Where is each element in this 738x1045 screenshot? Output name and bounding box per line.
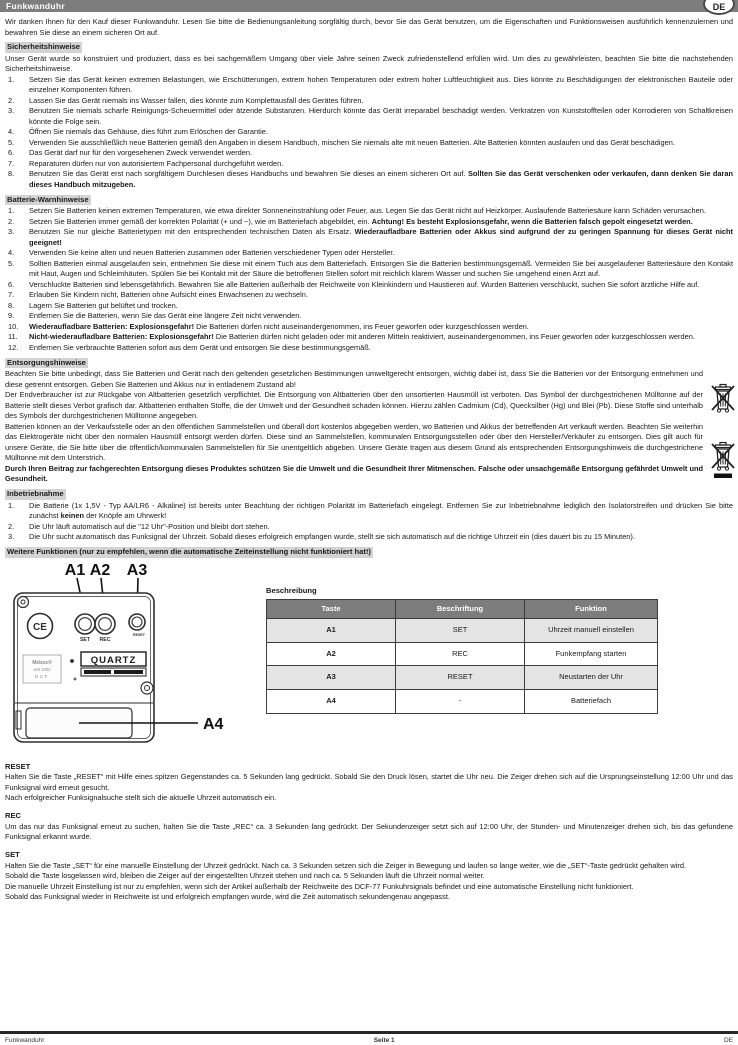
- crossed-bin-weee-icon: [711, 441, 735, 479]
- list-item-text: Setzen Sie Batterien keinen extremen Tem…: [29, 206, 733, 217]
- safety-list-item: 5. Verwenden Sie ausschließlich neue Bat…: [5, 138, 733, 149]
- list-item-number: 12.: [5, 343, 29, 354]
- column-header-beschriftung: Beschriftung: [396, 600, 525, 619]
- button-description-table: Taste Beschriftung Funktion A1 SET Uhrze…: [266, 599, 658, 713]
- list-item-text: Benutzen Sie das Gerät erst nach sorgfäl…: [29, 169, 733, 190]
- list-item-text: Das Gerät darf nur für den vorgesehenen …: [29, 148, 733, 159]
- safety-list-item: 1. Setzen Sie das Gerät keinen extremen …: [5, 75, 733, 96]
- list-item-number: 9.: [5, 311, 29, 322]
- setup-list-item: 3. Die Uhr sucht automatisch das Funksig…: [5, 532, 733, 543]
- safety-list-item: 4. Öffnen Sie niemals das Gehäuse, dies …: [5, 127, 733, 138]
- list-item-text: Verschluckte Batterien sind lebensgefähr…: [29, 280, 733, 291]
- diagram-and-table: A1 A2 A3 CE SET REC RESE: [6, 560, 733, 755]
- list-item-number: 3.: [5, 106, 29, 127]
- list-item-number: 2.: [5, 522, 29, 533]
- rec-button-label: REC: [100, 637, 111, 643]
- column-header-funktion: Funktion: [525, 600, 658, 619]
- setup-list-item: 2. Die Uhr läuft automatisch auf die "12…: [5, 522, 733, 533]
- list-item-number: 2.: [5, 96, 29, 107]
- list-item-number: 3.: [5, 532, 29, 543]
- set-paragraphs: Halten Sie die Taste „SET“ für eine manu…: [5, 861, 733, 903]
- section-heading-safety: Sicherheitshinweise: [5, 42, 82, 53]
- battery-list-item: 7. Erlauben Sie Kindern nicht, Batterien…: [5, 290, 733, 301]
- table-row: A1 SET Uhrzeit manuell einstellen: [267, 619, 658, 643]
- diagram-label-a1: A1: [65, 562, 86, 579]
- diagram-label-a4: A4: [203, 716, 224, 733]
- battery-list-item: 12. Entfernen Sie verbrauchte Batterien …: [5, 343, 733, 354]
- cell-beschriftung: SET: [396, 619, 525, 643]
- procedure-set: SET Halten Sie die Taste „SET“ für eine …: [5, 850, 733, 903]
- set-paragraph: Halten Sie die Taste „SET“ für eine manu…: [5, 861, 733, 872]
- language-badge-text: DE: [713, 2, 726, 12]
- page-title: Funkwanduhr: [6, 1, 65, 11]
- diagram-label-a2: A2: [90, 562, 111, 579]
- description-table-block: Beschreibung Taste Beschriftung Funktion…: [266, 586, 658, 755]
- brand-dcf: DCF: [35, 674, 49, 679]
- section-heading-disposal: Entsorgungshinweise: [5, 358, 88, 369]
- section-heading-more-functions: Weitere Funktionen (nur zu empfehlen, we…: [5, 547, 373, 558]
- quartz-label: QUARTZ: [91, 655, 137, 666]
- battery-list-item: 4. Verwenden Sie keine alten und neuen B…: [5, 248, 733, 259]
- disposal-paragraph: Der Endverbraucher ist zur Rückgabe von …: [5, 390, 703, 422]
- disposal-paragraph: Batterien können an der Verkaufsstelle o…: [5, 422, 703, 464]
- set-paragraph: Die manuelle Uhrzeit Einstellung ist nur…: [5, 882, 733, 893]
- cell-beschriftung: RESET: [396, 666, 525, 690]
- list-item-number: 5.: [5, 138, 29, 149]
- procedure-rec: REC Um das nur das Funksignal erneut zu …: [5, 811, 733, 843]
- list-item-text: Benutzen Sie nur gleiche Batterietypen m…: [29, 227, 733, 248]
- illegible-label-block: [84, 670, 111, 674]
- battery-list: 1. Setzen Sie Batterien keinen extremen …: [5, 206, 733, 353]
- cell-beschriftung: REC: [396, 642, 525, 666]
- list-item-text: Sollten Batterien einmal ausgelaufen sei…: [29, 259, 733, 280]
- list-item-number: 7.: [5, 159, 29, 170]
- cell-funktion: Funkempfang starten: [525, 642, 658, 666]
- safety-list-item: 2. Lassen Sie das Gerät niemals ins Wass…: [5, 96, 733, 107]
- list-item-text: Entfernen Sie die Batterien, wenn Sie da…: [29, 311, 733, 322]
- illegible-label-block: [114, 670, 143, 674]
- disposal-paragraph: Beachten Sie bitte unbedingt, dass Sie B…: [5, 369, 703, 390]
- safety-list-item: 3. Benutzen Sie niemals scharfe Reinigun…: [5, 106, 733, 127]
- list-item-number: 1.: [5, 206, 29, 217]
- battery-list-item: 3. Benutzen Sie nur gleiche Batterietype…: [5, 227, 733, 248]
- battery-list-item: 5. Sollten Batterien einmal ausgelaufen …: [5, 259, 733, 280]
- table-header-row: Taste Beschriftung Funktion: [267, 600, 658, 619]
- battery-list-item: 1. Setzen Sie Batterien keinen extremen …: [5, 206, 733, 217]
- set-button-label: SET: [80, 637, 91, 643]
- manual-content: Wir danken Ihnen für den Kauf dieser Fun…: [5, 12, 733, 903]
- table-row: A4 - Batteriefach: [267, 689, 658, 713]
- section-heading-battery: Batterie-Warnhinweise: [5, 195, 91, 206]
- cell-taste: A2: [267, 642, 396, 666]
- page-header: Funkwanduhr: [0, 0, 738, 12]
- safety-intro: Unser Gerät wurde so konstruiert und pro…: [5, 54, 733, 75]
- ce-mark: CE: [33, 622, 47, 633]
- battery-list-item: 2. Setzen Sie Batterien immer gemäß der …: [5, 217, 733, 228]
- list-item-number: 4.: [5, 127, 29, 138]
- disposal-section: Beachten Sie bitte unbedingt, dass Sie B…: [5, 369, 733, 485]
- cell-funktion: Batteriefach: [525, 689, 658, 713]
- list-item-number: 8.: [5, 169, 29, 190]
- list-item-number: 5.: [5, 259, 29, 280]
- cell-taste: A3: [267, 666, 396, 690]
- list-item-text: Öffnen Sie niemals das Gehäuse, dies füh…: [29, 127, 733, 138]
- list-item-text: Reparaturen dürfen nur von autorisiertem…: [29, 159, 733, 170]
- rec-heading: REC: [5, 811, 733, 822]
- list-item-number: 8.: [5, 301, 29, 312]
- list-item-number: 6.: [5, 148, 29, 159]
- brand-since: seit 1902: [34, 667, 52, 672]
- reset-paragraph: Nach erfolgreicher Funksignalsuche stell…: [5, 793, 733, 804]
- set-paragraph: Sobald die Taste losgelassen wird, bleib…: [5, 871, 733, 882]
- list-item-text: Nicht-wiederaufladbare Batterien: Explos…: [29, 332, 733, 343]
- list-item-text: Verwenden Sie keine alten und neuen Batt…: [29, 248, 733, 259]
- rec-paragraphs: Um das nur das Funksignal erneut zu such…: [5, 822, 733, 843]
- list-item-text: Die Uhr sucht automatisch das Funksignal…: [29, 532, 733, 543]
- footer-divider: [0, 1031, 738, 1034]
- safety-list-item: 8. Benutzen Sie das Gerät erst nach sorg…: [5, 169, 733, 190]
- list-item-number: 7.: [5, 290, 29, 301]
- crossed-bin-battery-icon: [711, 383, 735, 413]
- list-item-number: 4.: [5, 248, 29, 259]
- footer-page-number: Seite 1: [374, 1036, 395, 1045]
- list-item-text: Verwenden Sie ausschließlich neue Batter…: [29, 138, 733, 149]
- rec-paragraph: Um das nur das Funksignal erneut zu such…: [5, 822, 733, 843]
- list-item-text: Lagern Sie Batterien gut belüftet und tr…: [29, 301, 733, 312]
- list-item-number: 3.: [5, 227, 29, 248]
- section-heading-setup: Inbetriebnahme: [5, 489, 66, 500]
- battery-list-item: 6. Verschluckte Batterien sind lebensgef…: [5, 280, 733, 291]
- safety-list: 1. Setzen Sie das Gerät keinen extremen …: [5, 75, 733, 191]
- set-heading: SET: [5, 850, 733, 861]
- set-paragraph: Sobald das Funksignal wieder in Reichwei…: [5, 892, 733, 903]
- disposal-paragraphs: Beachten Sie bitte unbedingt, dass Sie B…: [5, 369, 703, 485]
- list-item-text: Entfernen Sie verbrauchte Batterien sofo…: [29, 343, 733, 354]
- list-item-number: 2.: [5, 217, 29, 228]
- list-item-number: 1.: [5, 75, 29, 96]
- cell-funktion: Neustarten der Uhr: [525, 666, 658, 690]
- column-header-taste: Taste: [267, 600, 396, 619]
- cell-beschriftung: -: [396, 689, 525, 713]
- list-item-text: Erlauben Sie Kindern nicht, Batterien oh…: [29, 290, 733, 301]
- cell-funktion: Uhrzeit manuell einstellen: [525, 619, 658, 643]
- battery-list-item: 10. Wiederaufladbare Batterien: Explosio…: [5, 322, 733, 333]
- setup-list-item: 1. Die Batterie (1x 1,5V - Typ AA/LR6 - …: [5, 501, 733, 522]
- setup-list: 1. Die Batterie (1x 1,5V - Typ AA/LR6 - …: [5, 501, 733, 543]
- battery-list-item: 9. Entfernen Sie die Batterien, wenn Sie…: [5, 311, 733, 322]
- cell-taste: A1: [267, 619, 396, 643]
- safety-list-item: 6. Das Gerät darf nur für den vorgesehen…: [5, 148, 733, 159]
- cell-taste: A4: [267, 689, 396, 713]
- list-item-number: 1.: [5, 501, 29, 522]
- page-footer: Funkwanduhr Seite 1 DE: [5, 1036, 733, 1045]
- procedure-reset: RESET Halten Sie die Taste „RESET“ mit H…: [5, 762, 733, 804]
- list-item-text: Lassen Sie das Gerät niemals ins Wasser …: [29, 96, 733, 107]
- disposal-paragraph: Durch Ihren Beitrag zur fachgerechten En…: [5, 464, 703, 485]
- list-item-text: Setzen Sie Batterien immer gemäß der kor…: [29, 217, 733, 228]
- table-row: A2 REC Funkempfang starten: [267, 642, 658, 666]
- list-item-number: 11.: [5, 332, 29, 343]
- list-item-number: 10.: [5, 322, 29, 333]
- clock-movement-diagram: A1 A2 A3 CE SET REC RESE: [6, 560, 256, 755]
- table-row: A3 RESET Neustarten der Uhr: [267, 666, 658, 690]
- list-item-number: 6.: [5, 280, 29, 291]
- table-body: A1 SET Uhrzeit manuell einstellen A2 REC…: [267, 619, 658, 714]
- reset-paragraph: Halten Sie die Taste „RESET“ mit Hilfe e…: [5, 772, 733, 793]
- list-item-text: Die Uhr läuft automatisch auf die "12 Uh…: [29, 522, 733, 533]
- battery-list-item: 11. Nicht-wiederaufladbare Batterien: Ex…: [5, 332, 733, 343]
- diagram-label-a3: A3: [127, 562, 148, 579]
- reset-paragraphs: Halten Sie die Taste „RESET“ mit Hilfe e…: [5, 772, 733, 804]
- brand-name: Mebus®: [32, 659, 52, 666]
- footer-language: DE: [724, 1036, 733, 1045]
- reset-heading: RESET: [5, 762, 733, 773]
- battery-list-item: 8. Lagern Sie Batterien gut belüftet und…: [5, 301, 733, 312]
- reset-button-label: RESET: [133, 633, 146, 637]
- footer-title: Funkwanduhr: [5, 1036, 44, 1045]
- safety-list-item: 7. Reparaturen dürfen nur von autorisier…: [5, 159, 733, 170]
- list-item-text: Die Batterie (1x 1,5V - Typ AA/LR6 - Alk…: [29, 501, 733, 522]
- table-caption: Beschreibung: [266, 586, 658, 597]
- intro-paragraph: Wir danken Ihnen für den Kauf dieser Fun…: [5, 17, 733, 38]
- list-item-text: Setzen Sie das Gerät keinen extremen Bel…: [29, 75, 733, 96]
- list-item-text: Benutzen Sie niemals scharfe Reinigungs-…: [29, 106, 733, 127]
- list-item-text: Wiederaufladbare Batterien: Explosionsge…: [29, 322, 733, 333]
